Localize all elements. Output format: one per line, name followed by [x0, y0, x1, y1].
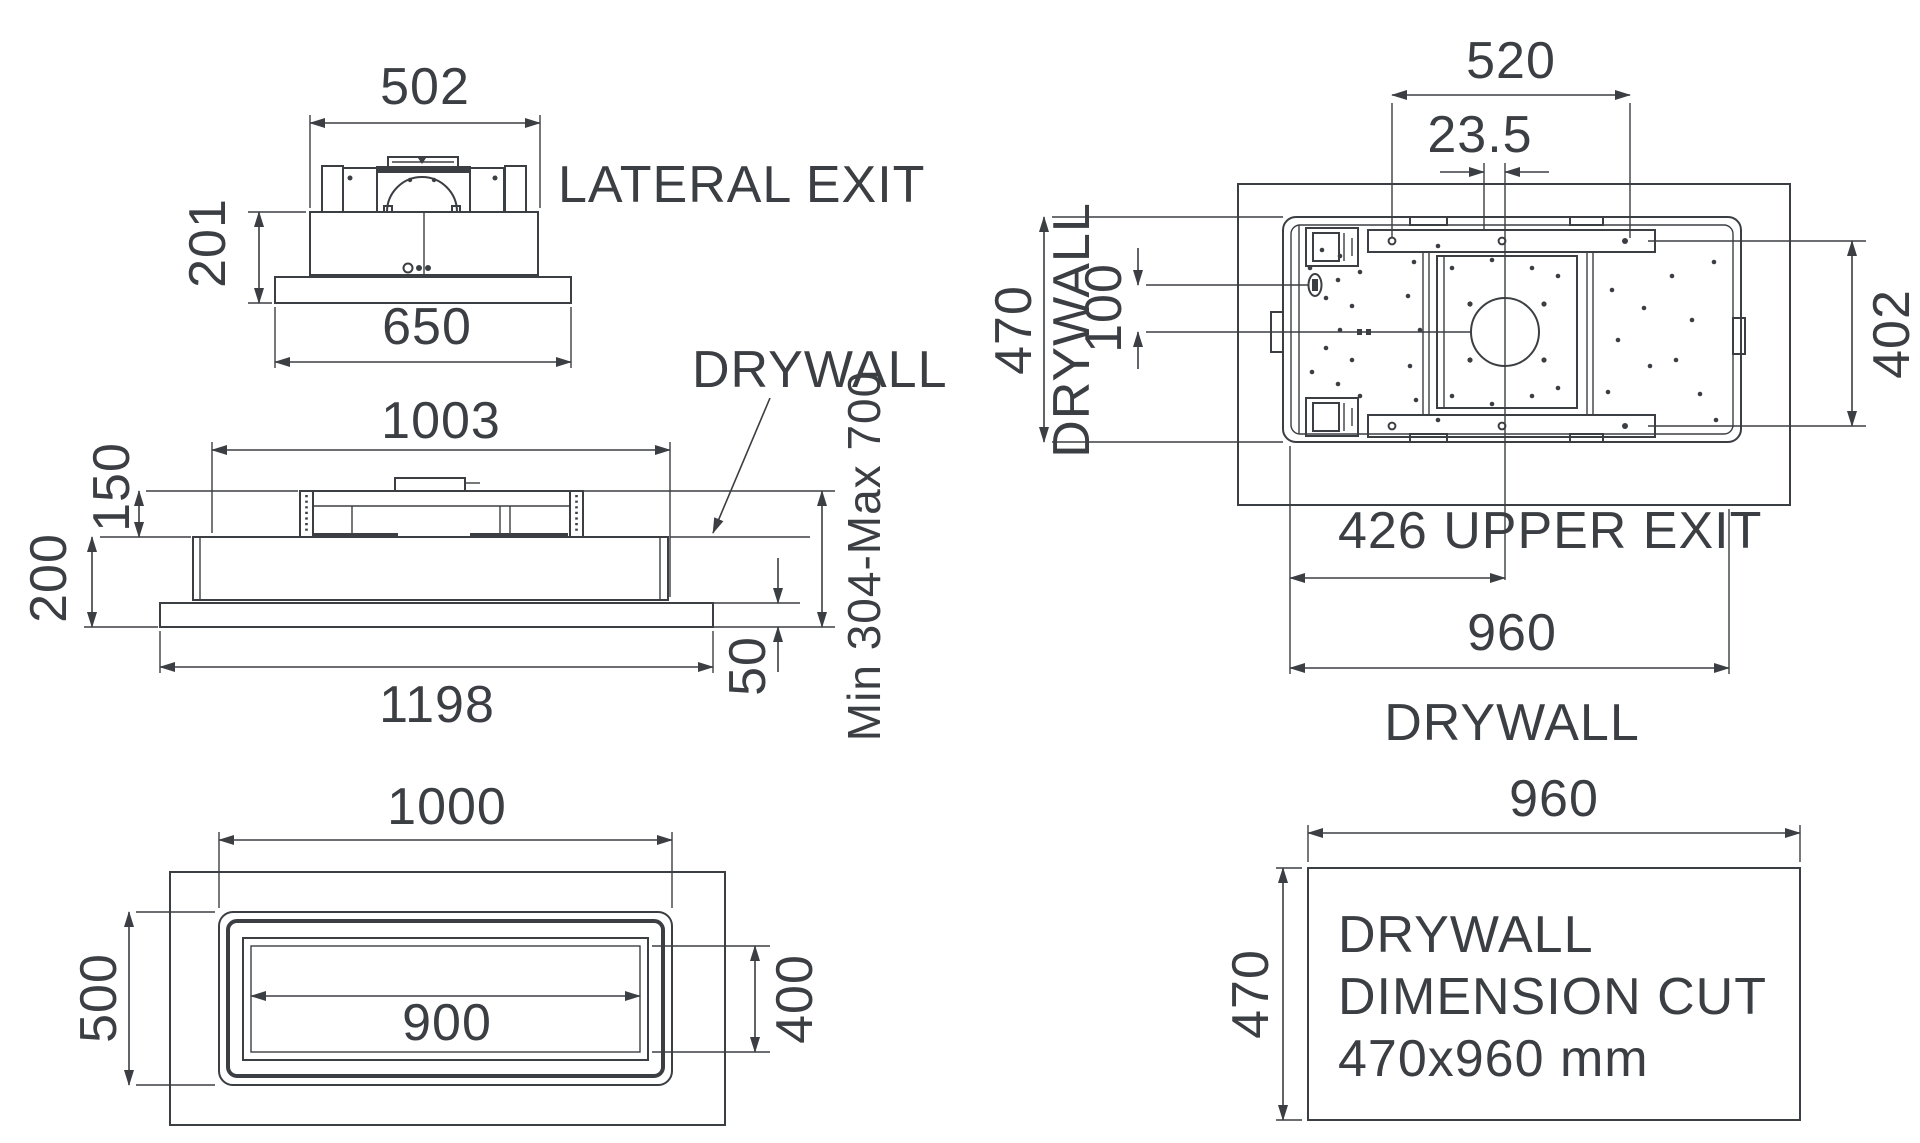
- top-drywall-bottom-label: DRYWALL: [1384, 694, 1640, 752]
- side-outlet-flange: [395, 478, 480, 491]
- top-dim-hole-offset: 100: [1075, 248, 1308, 369]
- cut-note: DRYWALL DIMENSION CUT 470x960 mm: [1338, 906, 1767, 1088]
- bottom-view: 1000 500 900 400: [70, 778, 824, 1125]
- top-dim-402-label: 402: [1863, 289, 1920, 379]
- bottom-dim-outer-depth: 500: [70, 912, 215, 1085]
- top-dim-426-label: 426 UPPER EXIT: [1338, 502, 1762, 560]
- front-cable-hole: [404, 264, 413, 273]
- side-body: [193, 537, 668, 600]
- front-body: [310, 212, 538, 275]
- top-dim-520-label: 520: [1466, 32, 1556, 90]
- side-trim-panel: [160, 603, 713, 627]
- cut-view: 960 470 DRYWALL DIMENSION CUT 470x960 mm: [1222, 770, 1800, 1120]
- side-view: 1003 DRYWALL 150 200 1198: [20, 341, 948, 741]
- side-dim-50-label: 50: [719, 636, 777, 696]
- bottom-dim-900-label: 900: [402, 994, 492, 1052]
- front-dim-base-width: 650: [275, 298, 571, 368]
- side-drywall-callout: DRYWALL: [670, 341, 948, 537]
- side-upper-housing: [300, 491, 583, 537]
- cut-note-line2: DIMENSION CUT: [1338, 968, 1767, 1026]
- side-dim-upper-height: 150: [83, 442, 298, 537]
- top-dim-bracket-span: 402: [1648, 241, 1920, 426]
- side-dim-trim-offset: 50: [713, 558, 835, 696]
- cut-dim-height: 470: [1222, 868, 1302, 1120]
- top-dim-100-label: 100: [1075, 263, 1133, 353]
- top-section-dividers: [1423, 252, 1593, 415]
- top-dim-23-5-label: 23.5: [1427, 106, 1532, 164]
- top-mounting-rails: [1368, 230, 1655, 437]
- side-dim-200-label: 200: [20, 533, 78, 623]
- bottom-dim-400-label: 400: [766, 954, 824, 1044]
- bottom-dim-inner-depth: 400: [652, 946, 824, 1052]
- side-dim-150-label: 150: [83, 442, 141, 532]
- front-duct-arch: [387, 177, 457, 212]
- front-outlet-flange: [388, 157, 458, 167]
- front-view: 502 LATERAL EXIT 201 650: [179, 58, 925, 368]
- bottom-dim-inner-width: 900: [251, 994, 640, 1052]
- cut-dim-960-label: 960: [1509, 770, 1599, 828]
- side-dim-recess-label: Min 304-Max 700: [838, 371, 890, 741]
- front-dim-650-label: 650: [382, 298, 472, 356]
- cut-note-line3: 470x960 mm: [1338, 1030, 1649, 1088]
- side-drywall-label: DRYWALL: [692, 341, 948, 399]
- side-dim-1003-label: 1003: [381, 392, 501, 450]
- bottom-dim-1000-label: 1000: [387, 778, 507, 836]
- side-dim-1198-label: 1198: [379, 676, 495, 734]
- top-motor-bracket-upper: [1306, 228, 1358, 266]
- front-dim-height: 201: [179, 198, 306, 303]
- cut-note-line1: DRYWALL: [1338, 906, 1594, 964]
- bottom-dim-outer-width: 1000: [219, 778, 672, 908]
- top-view: 520 23.5 470 DRYWALL 100 402: [985, 32, 1920, 752]
- bottom-dim-500-label: 500: [70, 953, 128, 1043]
- label-lateral-exit: LATERAL EXIT: [558, 156, 925, 214]
- hood-installation-drawing: 502 LATERAL EXIT 201 650: [0, 0, 1920, 1143]
- side-dim-body-height: 200: [20, 533, 158, 627]
- cut-dim-470-label: 470: [1222, 949, 1280, 1039]
- side-dim-top-width: 1003: [212, 392, 670, 597]
- top-dim-960-label: 960: [1467, 604, 1557, 662]
- side-dim-base-width: 1198: [160, 631, 713, 734]
- front-dim-502-label: 502: [380, 58, 470, 116]
- front-dim-201-label: 201: [179, 198, 237, 288]
- top-dim-center-offset: 23.5: [1427, 106, 1549, 172]
- technical-drawing-page: 502 LATERAL EXIT 201 650: [0, 0, 1920, 1143]
- front-upper-housing: [322, 166, 526, 212]
- top-dim-470-label: 470: [985, 285, 1043, 375]
- top-right-tab: [1733, 318, 1745, 354]
- top-motor-bracket-lower: [1306, 398, 1358, 436]
- cut-dim-width: 960: [1308, 770, 1800, 862]
